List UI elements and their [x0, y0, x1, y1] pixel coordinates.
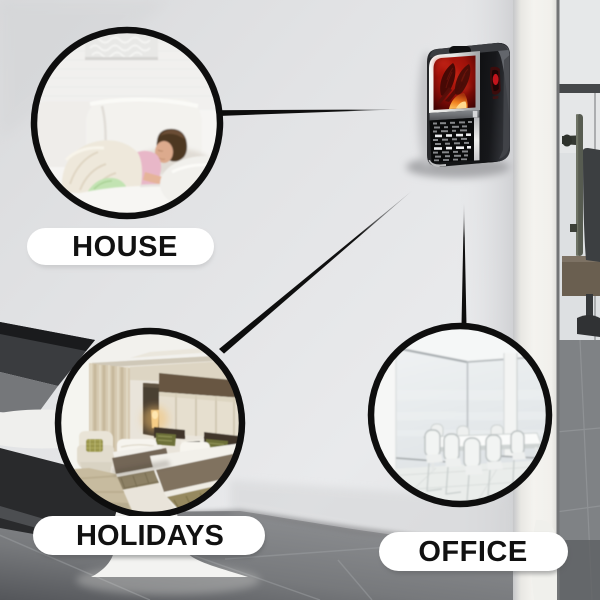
svg-text:HOLIDAYS: HOLIDAYS [76, 520, 224, 552]
svg-text:HOUSE: HOUSE [72, 231, 178, 263]
svg-text:OFFICE: OFFICE [418, 536, 527, 568]
